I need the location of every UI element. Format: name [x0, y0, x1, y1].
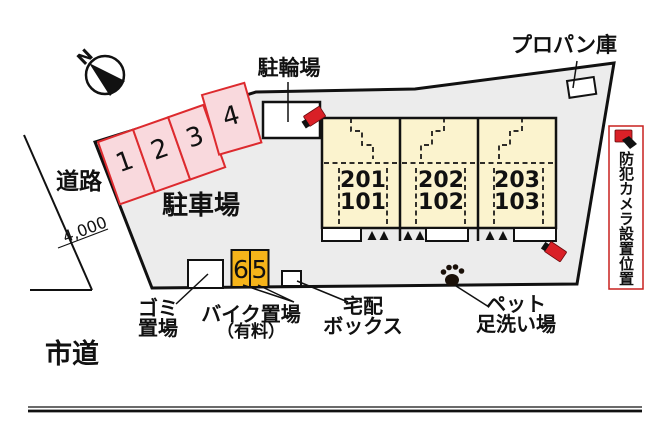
- unit-number-lower-3: 103: [494, 190, 540, 215]
- propane-box: [567, 77, 596, 98]
- bike-parking-label-line2: （有料）: [201, 324, 301, 341]
- entrance-porch-1: [322, 228, 361, 241]
- pet-foot-wash-label: ペット 足洗い場: [476, 294, 556, 335]
- road-label: 道路: [56, 171, 102, 194]
- delivery-box-label: 宅配 ボックス: [323, 296, 402, 337]
- bike-parking-label: バイク置場 （有料）: [201, 304, 301, 342]
- pet-wash-label-line2: 足洗い場: [476, 314, 556, 334]
- bike-space-number-5: 5: [252, 255, 268, 284]
- road-edge-line: [24, 135, 92, 290]
- delivery-box: [282, 271, 301, 286]
- delivery-box-label-line1: 宅配: [323, 296, 402, 316]
- parking-area-label: 駐車場: [162, 193, 240, 220]
- garbage-label-line2: 置場: [138, 318, 178, 338]
- garbage-label-line1: ゴミ: [138, 298, 178, 318]
- garbage-box: [188, 260, 223, 288]
- unit-number-lower-1: 101: [340, 190, 386, 215]
- unit-numbers: 201 101 202 102 203 103: [340, 168, 540, 215]
- propane-box-group: [567, 77, 596, 98]
- site-plan: 1 2 3 4 201 101 202 102 203: [0, 0, 661, 436]
- entrance-porch-2: [426, 228, 468, 241]
- propane-storage-label: プロパン庫: [511, 35, 617, 56]
- delivery-box-label-line2: ボックス: [323, 316, 402, 336]
- unit-number-lower-2: 102: [418, 190, 464, 215]
- entrance-porch-3: [514, 228, 556, 241]
- camera-legend-label: 防犯カメラ設置位置: [610, 151, 642, 288]
- bike-space-number-6: 6: [233, 255, 249, 284]
- city-road-label: 市道: [45, 341, 99, 369]
- bicycle-parking-label: 駐輪場: [258, 58, 321, 79]
- garbage-area-label: ゴミ 置場: [138, 298, 178, 339]
- pet-wash-label-line1: ペット: [476, 294, 556, 314]
